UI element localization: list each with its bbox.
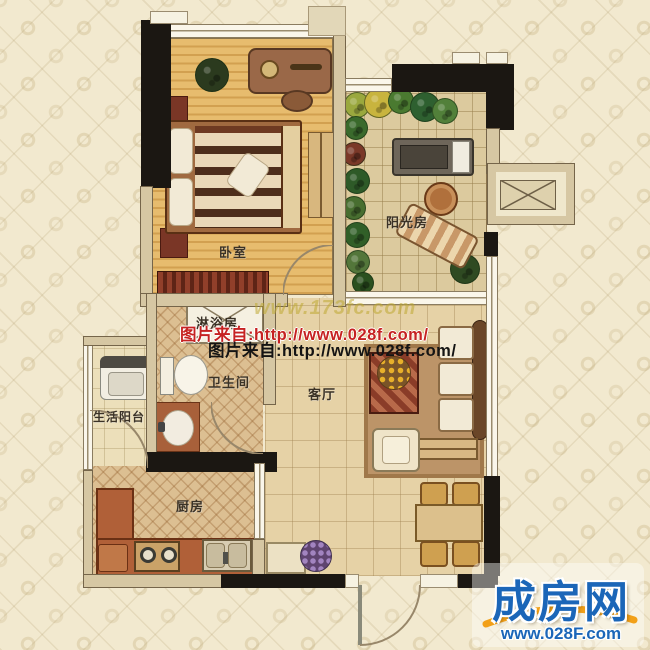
bedroom-label: 卧室 — [219, 242, 247, 261]
armchair-cushion — [382, 436, 410, 464]
floorplan-scene: 卧室 阳光房 淋浴房 卫生间 生活阳台 厨房 客厅 www.173fc.com … — [0, 0, 650, 650]
dining-chair — [420, 541, 448, 567]
toilet-tank — [160, 357, 174, 395]
coffee-table — [414, 438, 478, 460]
sunroom-label: 阳光房 — [386, 212, 428, 231]
bed-pillow — [169, 128, 193, 174]
burner — [161, 547, 177, 563]
wall — [252, 539, 265, 576]
plant — [344, 168, 370, 194]
bathroom-door-arc — [211, 402, 263, 454]
faucet — [158, 422, 165, 432]
brand-logo-url: www.028F.com — [481, 624, 641, 644]
watermark-line-black: 图片来自:http://www.028f.com/ — [208, 337, 456, 361]
door-frame — [345, 574, 359, 588]
desk-slot — [290, 64, 322, 70]
kitchen-label: 厨房 — [176, 496, 204, 515]
dresser — [308, 132, 334, 218]
window — [486, 256, 498, 478]
washing-machine-panel — [100, 356, 152, 368]
wall — [83, 574, 223, 588]
elevator-cross — [500, 180, 556, 210]
ledge — [486, 52, 508, 64]
plant — [344, 116, 368, 140]
ledge — [150, 11, 188, 24]
cutting-board — [98, 544, 128, 572]
wall-column — [486, 64, 514, 130]
watermark-site-faint: www.173fc.com — [254, 297, 416, 320]
wardrobe — [157, 271, 269, 295]
window — [345, 78, 392, 92]
washing-machine-lid — [108, 372, 144, 396]
sofa-cushion — [438, 362, 474, 396]
service-balcony-label: 生活阳台 — [93, 408, 145, 425]
dining-chair — [452, 482, 480, 506]
faucet — [223, 552, 228, 564]
stool — [281, 90, 313, 112]
burner — [140, 547, 156, 563]
wall-column — [484, 232, 498, 256]
sink-basin — [162, 410, 194, 446]
plant — [344, 222, 370, 248]
living-room-label: 客厅 — [308, 384, 336, 403]
bed-pillow — [169, 178, 193, 226]
mirror — [260, 60, 279, 79]
bathroom-label: 卫生间 — [208, 372, 250, 391]
window-partition — [254, 463, 265, 539]
door-frame — [420, 574, 458, 588]
treadmill-console — [452, 141, 470, 173]
dining-chair — [420, 482, 448, 506]
entrance-door-arc — [358, 585, 422, 647]
treadmill-belt — [400, 145, 448, 169]
sink-bowl — [228, 543, 247, 568]
wall-column — [141, 20, 171, 188]
wall — [83, 336, 153, 346]
sofa-cushion — [438, 398, 474, 432]
plant — [195, 58, 229, 92]
dining-table — [415, 504, 483, 542]
plant — [432, 98, 458, 124]
wall — [83, 470, 93, 576]
wall — [140, 186, 153, 296]
flower-decor — [377, 356, 411, 390]
flower-decor — [300, 540, 332, 572]
bedroom-door-arc — [283, 245, 335, 297]
plant — [346, 250, 370, 274]
wall-column — [221, 574, 345, 588]
ledge — [452, 52, 480, 64]
wall-column — [484, 476, 500, 576]
toilet — [174, 355, 208, 395]
bed-foot — [281, 126, 300, 228]
brand-logo-name: 成房网 — [481, 566, 641, 630]
wall-pier — [308, 6, 346, 36]
